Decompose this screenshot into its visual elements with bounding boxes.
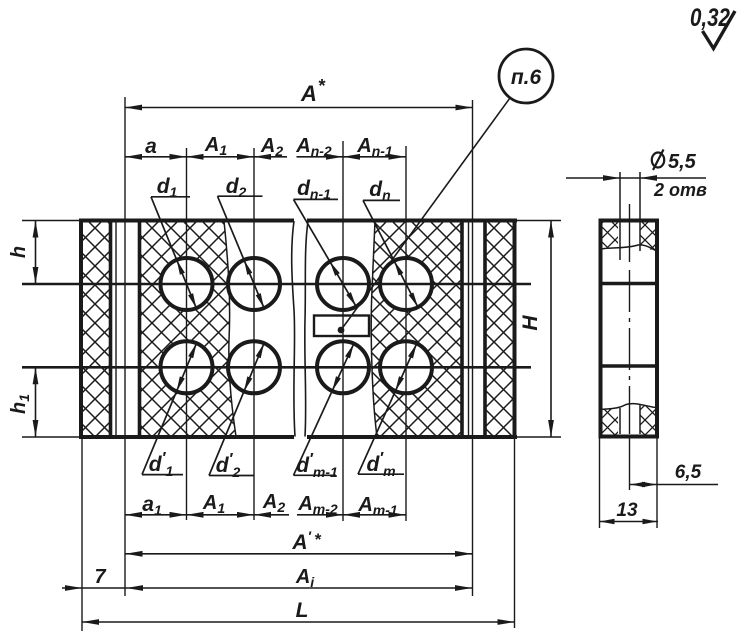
svg-text:Am-1: Am-1 — [357, 494, 398, 518]
svg-text:d2: d2 — [226, 175, 247, 200]
svg-text:′: ′ — [308, 528, 312, 544]
svg-text:A1: A1 — [202, 492, 225, 516]
svg-text:d′2: d′2 — [216, 451, 241, 480]
svg-text:A2: A2 — [260, 135, 283, 159]
svg-text:*: * — [318, 76, 325, 96]
svg-text:a: a — [145, 135, 157, 158]
svg-text:*: * — [315, 530, 322, 549]
svg-text:5,5: 5,5 — [668, 151, 697, 173]
svg-text:d′1: d′1 — [149, 450, 174, 479]
svg-text:An-1: An-1 — [356, 135, 393, 159]
svg-text:13: 13 — [616, 500, 638, 521]
svg-text:Ai: Ai — [295, 566, 315, 590]
svg-text:A1: A1 — [204, 134, 227, 158]
svg-text:H: H — [519, 315, 542, 331]
svg-text:h: h — [8, 246, 30, 258]
svg-text:dn: dn — [369, 178, 390, 203]
svg-text:2 отв: 2 отв — [653, 180, 707, 200]
svg-text:A: A — [300, 81, 317, 106]
svg-text:a1: a1 — [142, 493, 162, 518]
svg-text:Am-2: Am-2 — [297, 493, 338, 517]
svg-text:A2: A2 — [262, 491, 285, 515]
svg-text:7: 7 — [94, 566, 106, 588]
svg-text:L: L — [296, 599, 309, 622]
svg-text:dn-1: dn-1 — [297, 177, 331, 202]
svg-text:6,5: 6,5 — [675, 462, 702, 483]
svg-text:h1: h1 — [8, 394, 32, 414]
svg-text:d′m-1: d′m-1 — [296, 451, 338, 480]
svg-text:d1: d1 — [157, 175, 178, 200]
svg-text:An-2: An-2 — [295, 135, 332, 159]
svg-text:п.6: п.6 — [511, 66, 542, 89]
svg-text:A: A — [291, 531, 307, 554]
